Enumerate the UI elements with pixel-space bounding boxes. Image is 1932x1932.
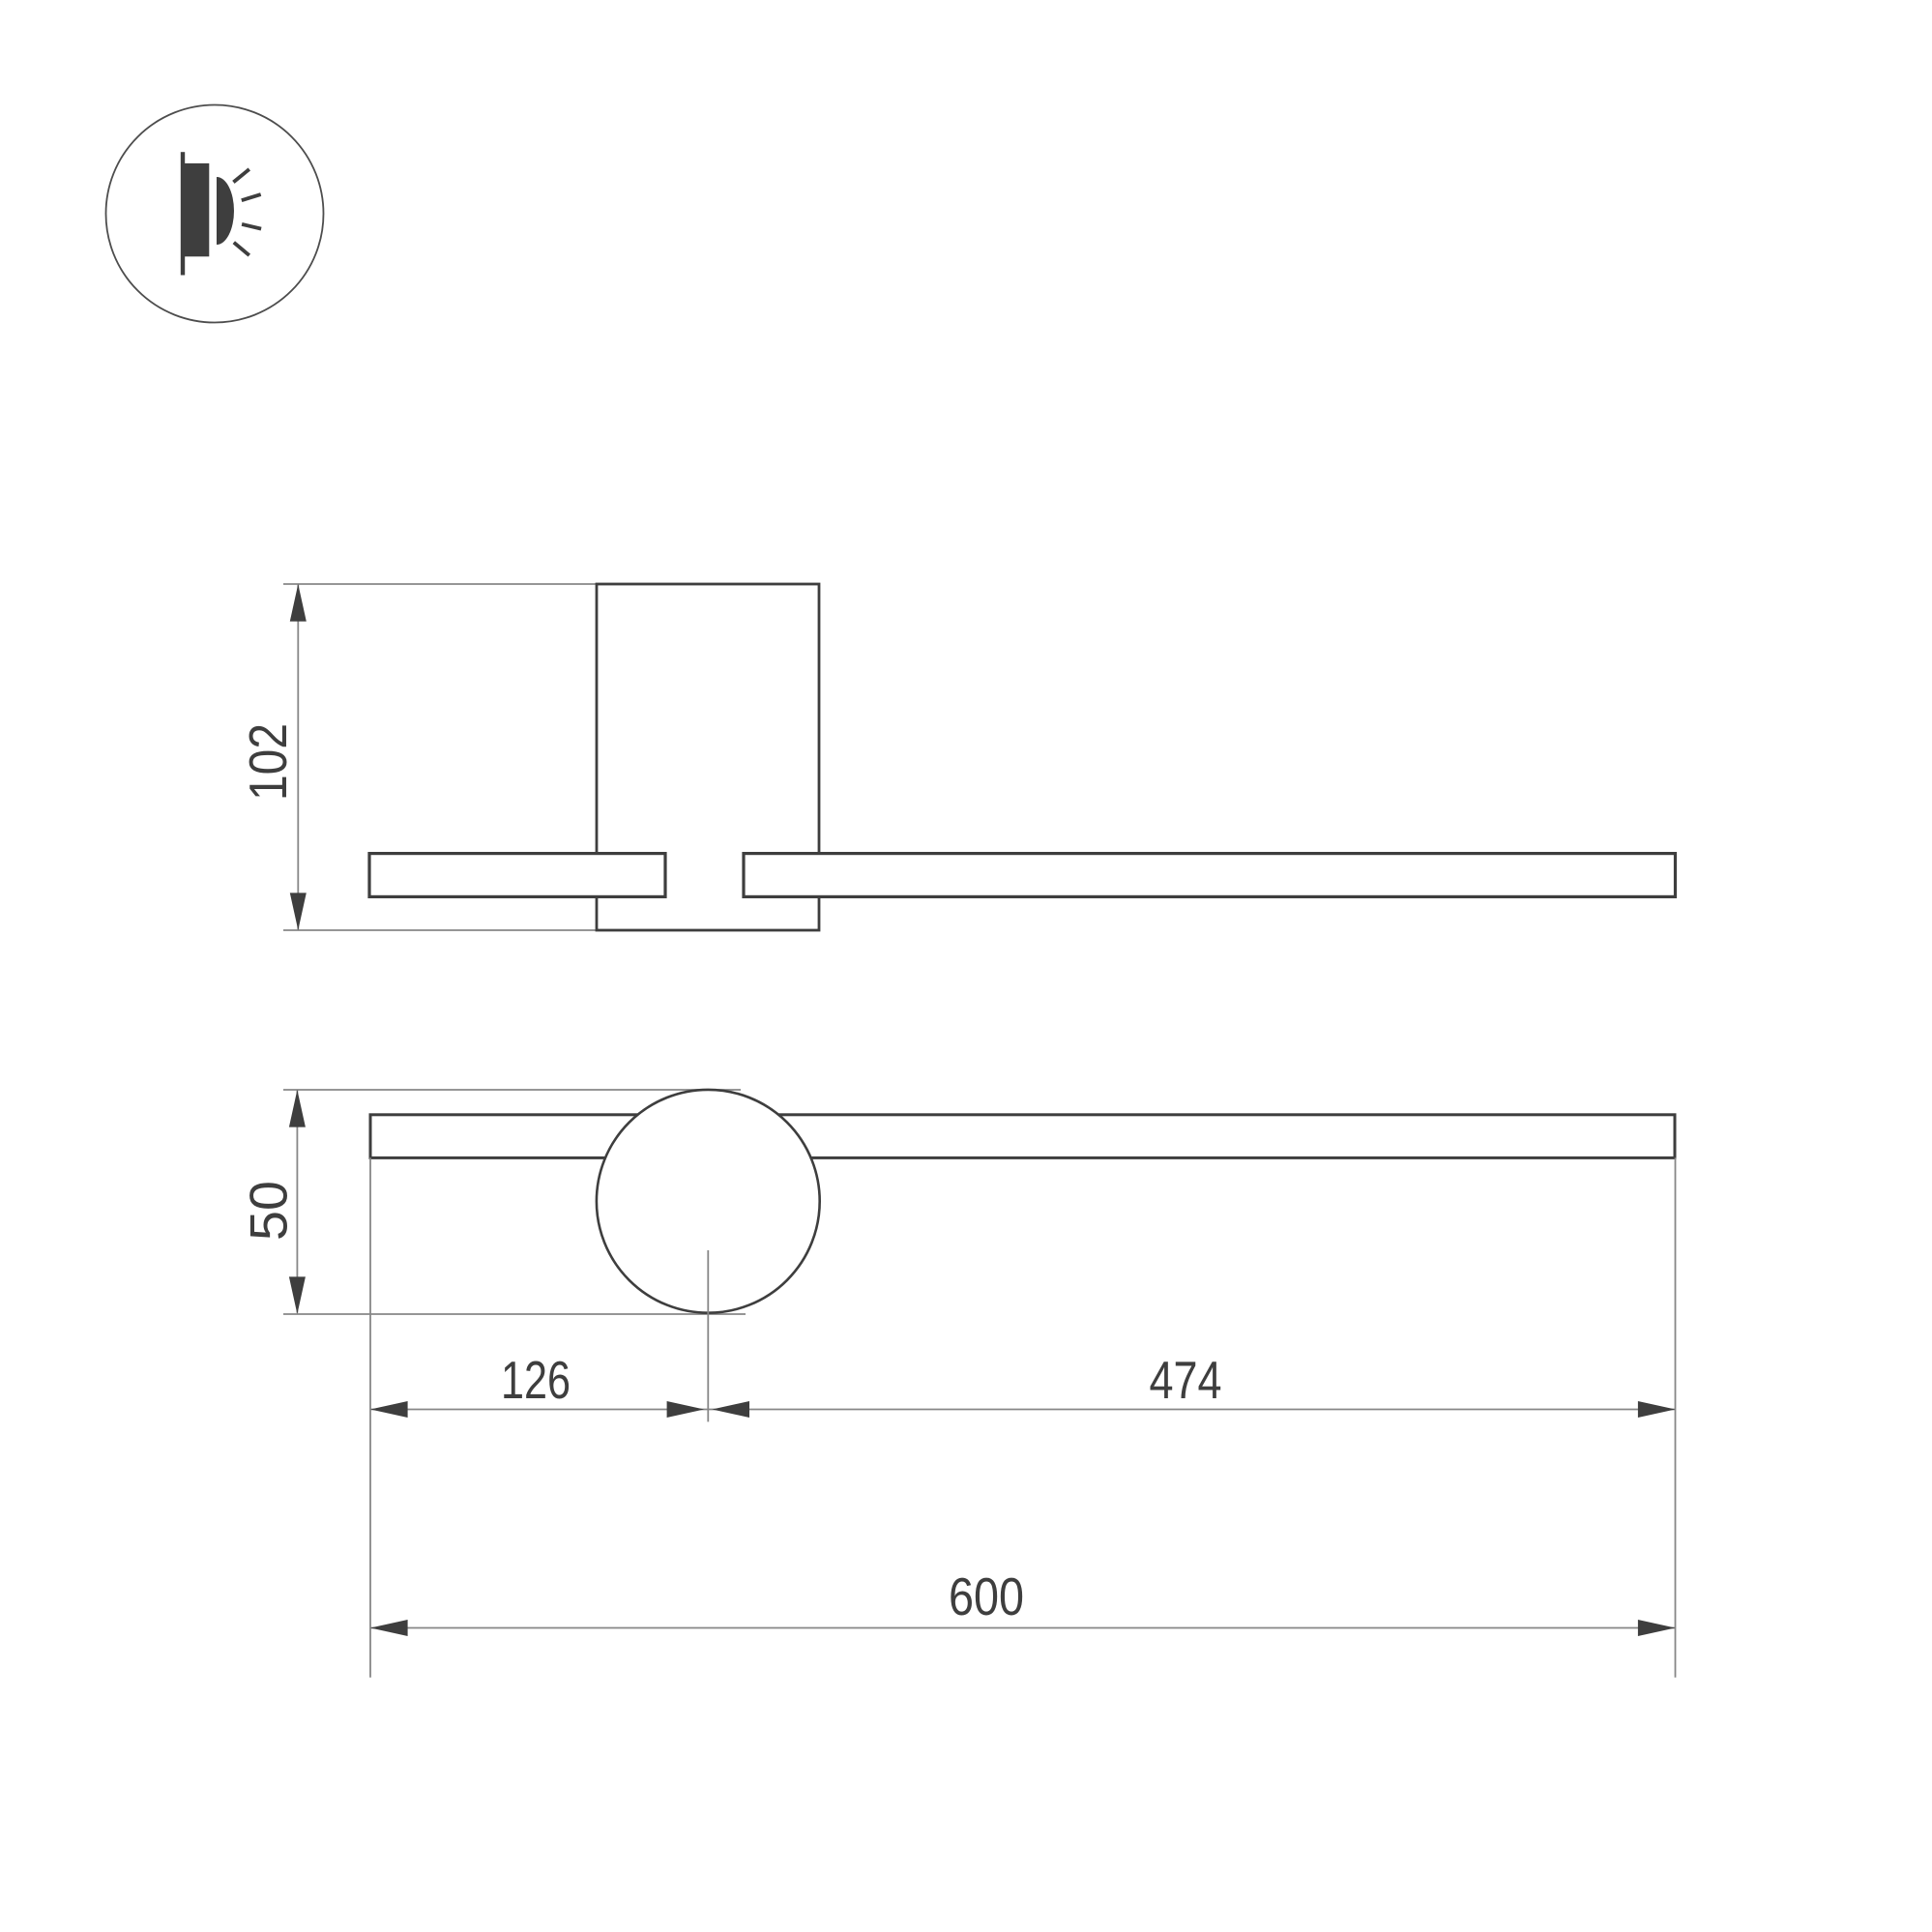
svg-text:474: 474 [1150, 1350, 1222, 1410]
svg-text:126: 126 [501, 1350, 571, 1410]
svg-text:50: 50 [239, 1181, 299, 1241]
svg-text:600: 600 [949, 1566, 1024, 1626]
svg-text:102: 102 [238, 723, 298, 801]
